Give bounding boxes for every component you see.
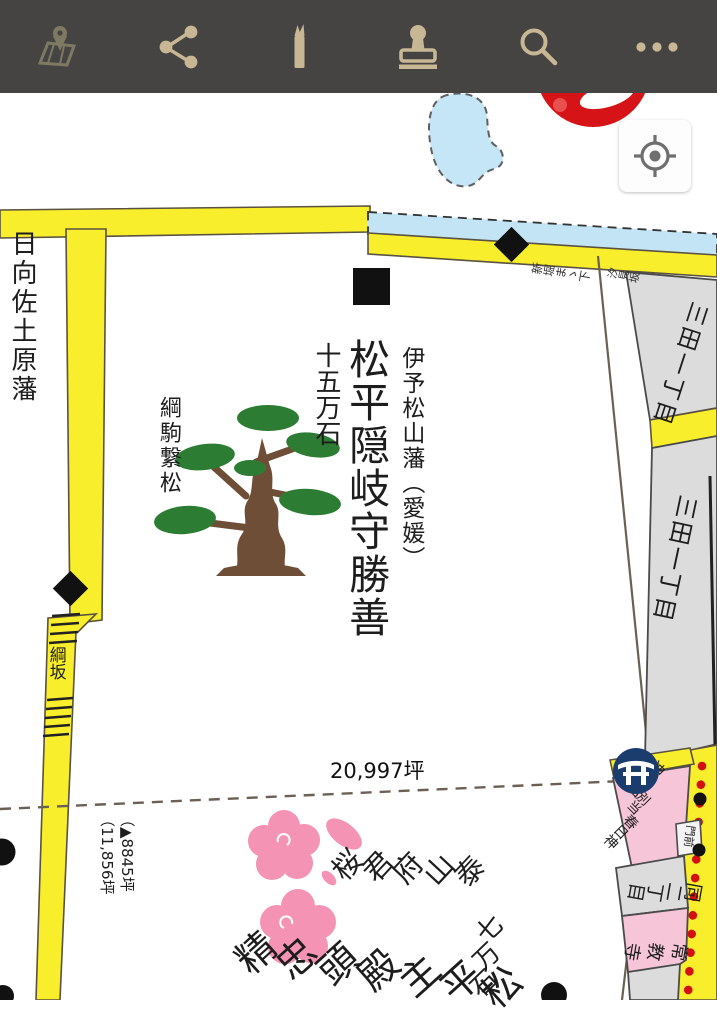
- share-icon[interactable]: [151, 19, 207, 75]
- marker-dot-gate1: [694, 793, 707, 806]
- label-area-main: 20,997坪: [330, 761, 424, 783]
- marker-dot-south: [541, 982, 567, 1000]
- parcel-temple: [622, 908, 688, 972]
- label-temple: 常教寺: [621, 942, 687, 961]
- marker-dot-west: [0, 839, 16, 866]
- label-west-estate: 日向佐土原藩: [8, 230, 35, 404]
- stamp-icon[interactable]: [390, 19, 446, 75]
- label-estate-domain: 伊予松山藩（愛媛）: [398, 346, 422, 571]
- label-monzen: 門前: [682, 825, 696, 848]
- road-top: [0, 206, 370, 238]
- label-area-alt-line2: （11,856坪: [97, 812, 117, 895]
- road-west-upper: [66, 229, 106, 624]
- torii-shrine-marker[interactable]: [613, 748, 659, 794]
- label-estate-lord: 松平隠岐守勝善: [344, 338, 387, 639]
- pond: [429, 94, 503, 187]
- map-icon[interactable]: [32, 19, 88, 75]
- label-town-block-south: 同二丁目: [627, 882, 701, 902]
- toolbar: [0, 0, 717, 93]
- torii-icon: [613, 748, 659, 794]
- label-slope-west: 綱坂: [46, 646, 64, 680]
- label-sakura: 泰山府君桜: [331, 849, 486, 888]
- locate-button[interactable]: [619, 120, 691, 192]
- label-area-alt-line1: （▲8845坪: [117, 812, 137, 895]
- map-canvas[interactable]: 日向佐土原藩 伊予松山藩（愛媛） 松平隠岐守勝善 十五万石 綱駒繋松 綱坂 新堀…: [0, 93, 717, 1000]
- label-south-estate-stipend: 七万石: [470, 915, 506, 1000]
- label-estate-stipend: 十五万石: [312, 342, 339, 446]
- search-icon[interactable]: [510, 19, 566, 75]
- marker-dot-southwest: [0, 985, 14, 1000]
- crosshair-icon: [619, 120, 691, 192]
- marker-square: [353, 268, 390, 305]
- label-area-alt: （▲8845坪 （11,856坪: [97, 812, 136, 895]
- estate-border-bottom-dashed: [0, 780, 646, 809]
- label-pine-tree: 綱駒繋松: [156, 396, 179, 496]
- pen-icon[interactable]: [271, 19, 327, 75]
- more-icon[interactable]: [629, 19, 685, 75]
